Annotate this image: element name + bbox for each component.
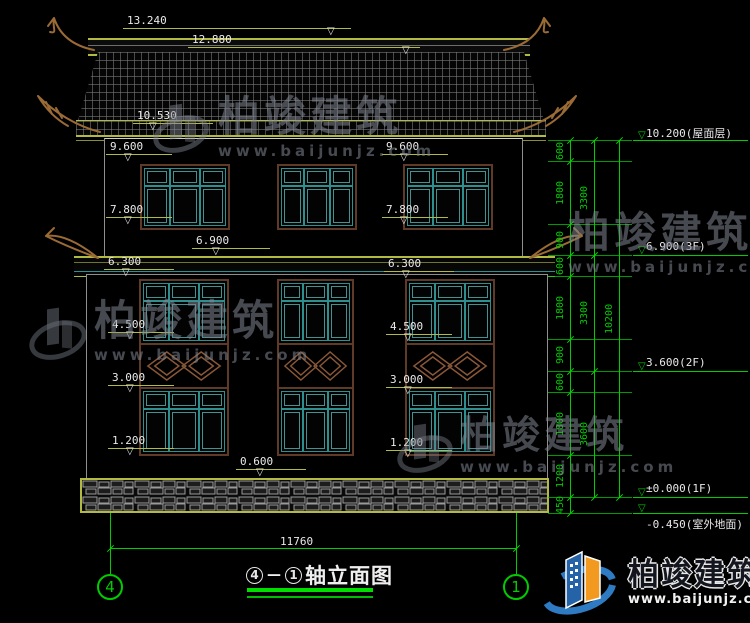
level-line xyxy=(633,497,748,498)
elevation-marker-line xyxy=(386,450,452,451)
elevation-marker-triangle: ▽ xyxy=(126,447,134,457)
elevation-marker-line xyxy=(382,154,448,155)
dim-value: 450 xyxy=(555,481,566,529)
dim-chain-line xyxy=(570,140,571,513)
dim-value: 10200 xyxy=(604,295,615,343)
level-label: ±0.000(1F) xyxy=(646,482,712,495)
elevation-marker-triangle: ▽ xyxy=(256,468,264,478)
elevation-marker-line xyxy=(382,217,448,218)
level-line xyxy=(633,513,748,514)
elevation-marker-triangle: ▽ xyxy=(122,268,130,278)
elevation-marker-triangle: ▽ xyxy=(212,247,220,257)
dim-chain-line xyxy=(619,140,620,497)
dim-value: 3300 xyxy=(579,174,590,222)
elevation-marker-line xyxy=(236,469,306,470)
level-triangle: ▽ xyxy=(638,504,646,514)
elevation-marker-line xyxy=(104,269,174,270)
level-label: 3.600(2F) xyxy=(646,356,706,369)
elevation-marker-triangle: ▽ xyxy=(400,153,408,163)
elevation-marker-triangle: ▽ xyxy=(404,386,412,396)
dim-value: 1800 xyxy=(555,284,566,332)
dim-value: 600 xyxy=(555,242,566,290)
elevation-marker-line xyxy=(123,28,351,29)
elevation-marker-triangle: ▽ xyxy=(126,331,134,341)
elevation-marker-triangle: ▽ xyxy=(400,216,408,226)
elevation-marker-triangle: ▽ xyxy=(124,153,132,163)
brand-footer: 柏竣建筑 www.baijunjz.com xyxy=(538,546,750,620)
level-label: 6.900(3F) xyxy=(646,240,706,253)
level-triangle: ▽ xyxy=(638,362,646,372)
elevation-marker-triangle: ▽ xyxy=(126,384,134,394)
elevation-marker-line xyxy=(108,385,174,386)
dim-value: 1800 xyxy=(555,169,566,217)
level-triangle: ▽ xyxy=(638,131,646,141)
elevation-drawing: 13.240▽12.880▽10.530▽9.600▽9.600▽7.800▽7… xyxy=(0,0,750,623)
brand-name: 柏竣建筑 xyxy=(628,559,750,592)
elevation-marker-triangle: ▽ xyxy=(124,216,132,226)
elevation-marker-triangle: ▽ xyxy=(404,333,412,343)
dim-chain-line xyxy=(594,140,595,497)
elevation-marker-line xyxy=(108,332,174,333)
brand-url: www.baijunjz.com xyxy=(628,592,750,607)
elevation-marker-line xyxy=(384,271,454,272)
elevation-marker-line xyxy=(106,154,172,155)
dim-value: 600 xyxy=(555,358,566,406)
elevation-marker-triangle: ▽ xyxy=(402,270,410,280)
level-triangle: ▽ xyxy=(638,246,646,256)
annotations-layer: 13.240▽12.880▽10.530▽9.600▽9.600▽7.800▽7… xyxy=(0,0,750,623)
level-line xyxy=(633,371,748,372)
elevation-marker-line xyxy=(106,217,172,218)
elevation-marker-triangle: ▽ xyxy=(404,449,412,459)
dim-value: 600 xyxy=(555,127,566,175)
elevation-marker-label: 13.240 xyxy=(127,14,167,27)
elevation-marker-line xyxy=(133,123,213,124)
brand-logo-icon xyxy=(538,546,624,620)
elevation-marker-line xyxy=(188,47,420,48)
elevation-marker-triangle: ▽ xyxy=(149,122,157,132)
level-label: -0.450(室外地面) xyxy=(646,516,743,532)
elevation-marker-triangle: ▽ xyxy=(402,46,410,56)
level-triangle: ▽ xyxy=(638,488,646,498)
level-line xyxy=(633,255,748,256)
elevation-marker-triangle: ▽ xyxy=(327,27,335,37)
elevation-marker-line xyxy=(108,448,174,449)
elevation-marker-line xyxy=(386,387,452,388)
dim-value: 3300 xyxy=(579,289,590,337)
elevation-marker-line xyxy=(386,334,452,335)
level-label: 10.200(屋面层) xyxy=(646,125,732,141)
elevation-marker-line xyxy=(192,248,270,249)
dim-value: 3600 xyxy=(579,410,590,458)
dim-value: 1800 xyxy=(555,400,566,448)
elevation-marker-label: 12.880 xyxy=(192,33,232,46)
